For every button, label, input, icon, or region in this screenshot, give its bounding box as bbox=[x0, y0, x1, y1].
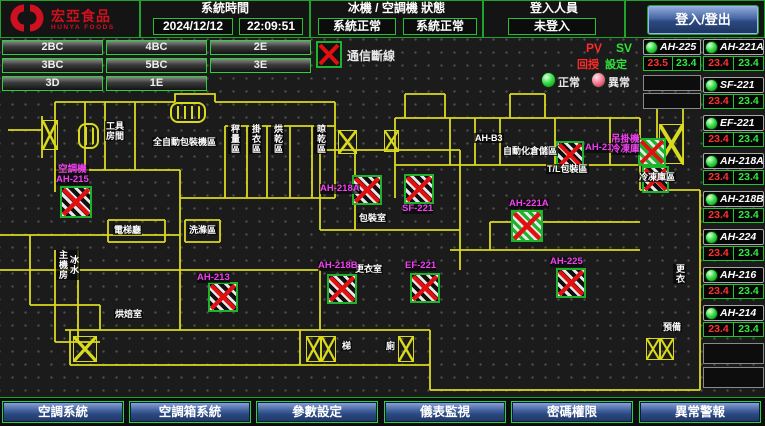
device-row-ah-221a[interactable]: AH-221A bbox=[703, 39, 764, 55]
device-values-ah-218b: 23.423.4 bbox=[703, 208, 764, 223]
empty-device-slot bbox=[703, 343, 764, 364]
header-bar: 宏亞食品 HUNYA FOODS 系統時間 2024/12/12 22:09:5… bbox=[0, 0, 765, 38]
device-values-ah-225: 23.523.4 bbox=[643, 56, 701, 71]
stair-icon bbox=[73, 336, 97, 362]
device-name-label: AH-221A bbox=[720, 41, 764, 53]
hmi-screen: 宏亞食品 HUNYA FOODS 系統時間 2024/12/12 22:09:5… bbox=[0, 0, 765, 426]
company-name-en: HUNYA FOODS bbox=[51, 25, 115, 32]
device-row-ah-218a[interactable]: AH-218A bbox=[703, 153, 764, 169]
device-name-label: AH-218A bbox=[720, 155, 764, 167]
device-row-ah-225[interactable]: AH-225 bbox=[643, 39, 701, 55]
device-name-label: AH-214 bbox=[720, 307, 756, 319]
device-name-label: SF-221 bbox=[720, 79, 754, 91]
room-label: 更衣 bbox=[673, 264, 686, 284]
room-label: 烘乾區 bbox=[271, 124, 284, 154]
device-status-lamp bbox=[705, 155, 718, 168]
offline-equipment-marker[interactable] bbox=[327, 274, 357, 304]
stair-icon bbox=[338, 130, 357, 154]
room-label: T/L包裝區 bbox=[546, 164, 589, 174]
room-label: 預備 bbox=[662, 322, 682, 332]
equipment-tag-label: AH-221A bbox=[509, 199, 549, 209]
room-label: AH-B3 bbox=[474, 133, 504, 143]
hvac-status-section: 冰機 / 空調機 狀態 系統正常 系統正常 bbox=[310, 0, 483, 38]
empty-device-slot bbox=[703, 367, 764, 388]
spiral-stair-icon bbox=[170, 102, 206, 123]
device-values-ah-218a: 23.423.4 bbox=[703, 170, 764, 185]
floor-plan: 工具 房間全自動包裝機區秤量區掛衣區烘乾區晾乾區AH-B3自動化倉儲區T/L包裝… bbox=[0, 92, 703, 396]
room-label: 包裝室 bbox=[358, 213, 387, 223]
device-name-label: AH-225 bbox=[660, 41, 696, 53]
equipment-tag-label: EF-221 bbox=[405, 261, 436, 271]
equipment-tag-label: 吊掛機 冷凍庫 bbox=[611, 135, 640, 155]
device-row-ah-214[interactable]: AH-214 bbox=[703, 305, 764, 321]
device-row-ah-218b[interactable]: AH-218B bbox=[703, 191, 764, 207]
pv-header: PV bbox=[586, 41, 602, 55]
footer-button-2[interactable]: 空調箱系統 bbox=[129, 401, 251, 423]
equipment-tag-label: AH-218B bbox=[318, 261, 358, 271]
device-status-lamp bbox=[645, 41, 658, 54]
equipment-tag-label: AH-225 bbox=[550, 257, 583, 267]
stair-icon bbox=[306, 336, 321, 362]
login-logout-button[interactable]: 登入/登出 bbox=[648, 6, 758, 34]
pv-value: 23.5 bbox=[644, 57, 673, 70]
device-name-label: AH-218B bbox=[720, 193, 764, 205]
offline-equipment-marker[interactable] bbox=[404, 174, 434, 204]
equipment-tag-label: 空調機 AH-215 bbox=[56, 165, 89, 185]
floor-button-3e[interactable]: 3E bbox=[210, 58, 311, 73]
device-values-ah-224: 23.423.4 bbox=[703, 246, 764, 261]
device-row-ah-216[interactable]: AH-216 bbox=[703, 267, 764, 283]
sv-value: 23.4 bbox=[734, 285, 763, 298]
stair-icon bbox=[42, 120, 58, 150]
company-name: 宏亞食品 bbox=[51, 9, 115, 23]
pv-caption: 回授 bbox=[577, 56, 599, 72]
device-values-ah-216: 23.423.4 bbox=[703, 284, 764, 299]
sv-value: 23.4 bbox=[734, 323, 763, 336]
floor-button-4bc[interactable]: 4BC bbox=[106, 40, 207, 55]
device-status-lamp bbox=[705, 193, 718, 206]
stair-icon bbox=[660, 338, 674, 360]
device-name-label: AH-224 bbox=[720, 231, 756, 243]
room-label: 秤量區 bbox=[228, 124, 241, 154]
pv-value: 23.4 bbox=[704, 323, 734, 336]
device-row-sf-221[interactable]: SF-221 bbox=[703, 77, 764, 93]
room-label: 掛衣區 bbox=[249, 124, 262, 154]
sv-value: 23.4 bbox=[734, 209, 763, 222]
offline-equipment-marker[interactable] bbox=[556, 268, 586, 298]
empty-device-slot bbox=[643, 75, 701, 91]
device-row-ah-224[interactable]: AH-224 bbox=[703, 229, 764, 245]
stair-icon bbox=[384, 130, 399, 152]
room-label: 冰水 主機房 bbox=[56, 250, 80, 280]
pv-value: 23.4 bbox=[704, 133, 734, 146]
login-user-display: 未登入 bbox=[508, 18, 596, 35]
sv-value: 23.4 bbox=[734, 95, 763, 108]
offline-equipment-marker[interactable] bbox=[60, 186, 92, 218]
sv-caption: 設定 bbox=[605, 56, 627, 72]
system-time-section: 系統時間 2024/12/12 22:09:51 bbox=[140, 0, 310, 38]
pv-value: 23.4 bbox=[704, 285, 734, 298]
floor-button-3d[interactable]: 3D bbox=[2, 76, 103, 91]
offline-equipment-marker[interactable] bbox=[638, 138, 666, 166]
room-label: 更衣室 bbox=[354, 264, 383, 274]
device-status-lamp bbox=[705, 307, 718, 320]
room-label: 電梯廳 bbox=[113, 225, 142, 235]
spiral-stair-icon bbox=[78, 123, 99, 149]
system-time-label: 系統時間 bbox=[141, 1, 309, 16]
sv-header: SV bbox=[616, 41, 632, 55]
pv-value: 23.4 bbox=[704, 171, 734, 184]
room-label: 冷凍庫區 bbox=[638, 172, 676, 182]
normal-legend-label: 正常 bbox=[558, 74, 580, 90]
pv-value: 23.4 bbox=[704, 209, 734, 222]
equipment-tag-label: SF-221 bbox=[402, 204, 433, 214]
sv-value: 23.4 bbox=[734, 247, 763, 260]
device-values-ef-221: 23.423.4 bbox=[703, 132, 764, 147]
room-label: 梯 bbox=[341, 341, 352, 351]
floor-button-5bc[interactable]: 5BC bbox=[106, 58, 207, 73]
floor-button-2bc[interactable]: 2BC bbox=[2, 40, 103, 55]
login-button-section: 登入/登出 bbox=[625, 0, 765, 38]
room-label: 晾乾區 bbox=[314, 124, 327, 154]
floor-button-3bc[interactable]: 3BC bbox=[2, 58, 103, 73]
footer-button-1[interactable]: 空調系統 bbox=[2, 401, 124, 423]
chiller-status: 系統正常 bbox=[318, 18, 396, 35]
pv-value: 23.4 bbox=[704, 95, 734, 108]
room-label: 全自動包裝機區 bbox=[152, 137, 217, 147]
logo-section: 宏亞食品 HUNYA FOODS bbox=[0, 0, 140, 38]
floor-button-2e[interactable]: 2E bbox=[210, 40, 311, 55]
pv-value: 23.4 bbox=[704, 247, 734, 260]
offline-equipment-marker[interactable] bbox=[208, 282, 238, 312]
room-label: 廁 bbox=[385, 341, 396, 351]
room-label: 烘焙室 bbox=[114, 309, 143, 319]
pv-value: 23.4 bbox=[704, 57, 734, 70]
footer-button-4[interactable]: 儀表監視 bbox=[384, 401, 506, 423]
sv-value: 23.4 bbox=[734, 133, 763, 146]
device-status-lamp bbox=[705, 269, 718, 282]
footer-button-3[interactable]: 參數設定 bbox=[256, 401, 378, 423]
stair-icon bbox=[646, 338, 660, 360]
room-label: 洗滌區 bbox=[188, 225, 217, 235]
ahu-status: 系統正常 bbox=[403, 18, 477, 35]
footer-bar: 空調系統空調箱系統參數設定儀表監視密碼權限異常警報 bbox=[0, 397, 765, 426]
offline-equipment-marker[interactable] bbox=[511, 210, 543, 242]
device-name-label: EF-221 bbox=[720, 117, 754, 129]
device-values-sf-221: 23.423.4 bbox=[703, 94, 764, 109]
abnormal-lamp-icon bbox=[591, 72, 606, 88]
sv-value: 23.4 bbox=[734, 171, 763, 184]
device-values-ah-214: 23.423.4 bbox=[703, 322, 764, 337]
hvac-status-label: 冰機 / 空調機 狀態 bbox=[311, 1, 482, 16]
equipment-tag-label: AH-218A bbox=[320, 184, 360, 194]
date-display: 2024/12/12 bbox=[153, 18, 233, 35]
login-section: 登入人員 未登入 bbox=[483, 0, 625, 38]
device-row-ef-221[interactable]: EF-221 bbox=[703, 115, 764, 131]
device-name-label: AH-216 bbox=[720, 269, 756, 281]
room-label: 工具 房間 bbox=[105, 121, 125, 141]
offline-equipment-marker[interactable] bbox=[410, 273, 440, 303]
stair-icon bbox=[398, 336, 414, 362]
empty-device-slot bbox=[643, 93, 701, 109]
device-status-lamp bbox=[705, 231, 718, 244]
floor-button-1e[interactable]: 1E bbox=[106, 76, 207, 91]
sv-value: 23.4 bbox=[673, 57, 701, 70]
abnormal-legend-label: 異常 bbox=[608, 74, 630, 90]
sv-value: 23.4 bbox=[734, 57, 763, 70]
login-label: 登入人員 bbox=[484, 1, 624, 16]
comm-fail-icon bbox=[316, 41, 342, 68]
device-status-lamp bbox=[705, 117, 718, 130]
room-label: 自動化倉儲區 bbox=[502, 146, 558, 156]
equipment-tag-label: AH-213 bbox=[197, 273, 230, 283]
device-status-lamp bbox=[705, 79, 718, 92]
footer-button-6[interactable]: 異常警報 bbox=[639, 401, 761, 423]
normal-lamp-icon bbox=[541, 72, 556, 88]
company-logo-icon bbox=[7, 3, 47, 38]
stair-icon bbox=[321, 336, 336, 362]
device-values-ah-221a: 23.423.4 bbox=[703, 56, 764, 71]
footer-button-5[interactable]: 密碼權限 bbox=[511, 401, 633, 423]
comm-fail-label: 通信斷線 bbox=[347, 47, 395, 64]
device-status-lamp bbox=[705, 41, 718, 54]
time-display: 22:09:51 bbox=[239, 18, 303, 35]
